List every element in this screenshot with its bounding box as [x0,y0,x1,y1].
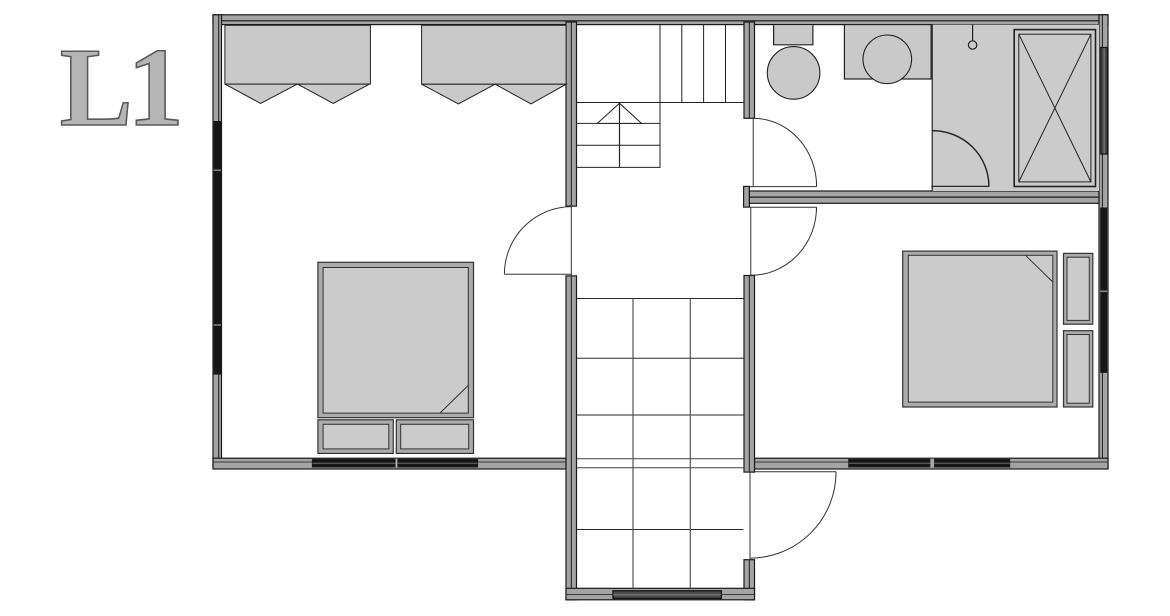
svg-text:L: L [60,25,133,150]
svg-text:1: 1 [127,26,184,149]
